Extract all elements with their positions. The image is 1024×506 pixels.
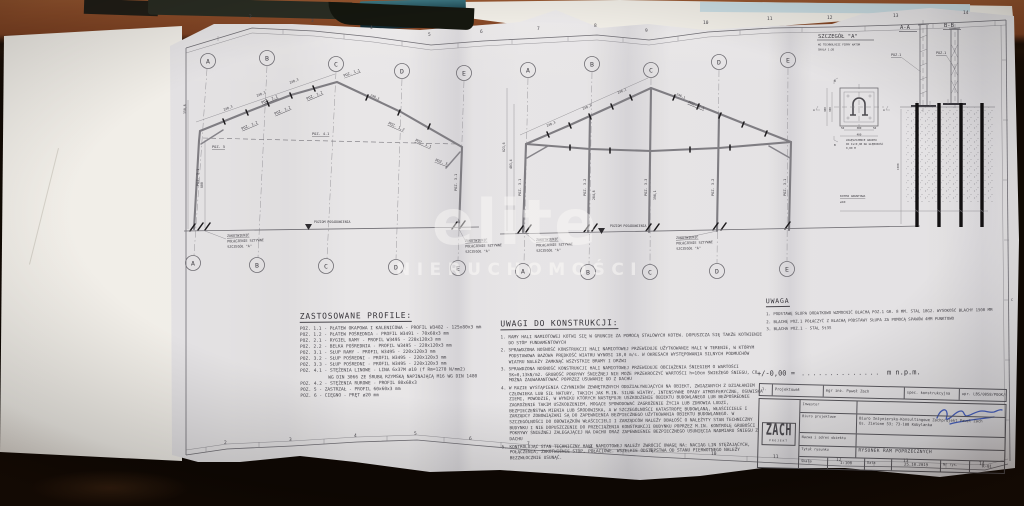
designer-name: mgr inż. Paweł Zach xyxy=(824,386,905,399)
ruler-number: 6 xyxy=(469,437,472,442)
number-value: K-01 xyxy=(970,462,1004,473)
ruler-number: 11 xyxy=(767,17,772,22)
note-item: 1. RAMY HALI NAMIOTOWEJ KOTWI SIĘ W GRUN… xyxy=(500,333,764,347)
note-item: 3. SPRAWDZONA NOŚNOŚĆ KONSTRUKCJI HALI N… xyxy=(501,365,765,385)
ruler-number: 2 xyxy=(249,15,252,20)
investor-label: Inwestor xyxy=(800,400,857,413)
ruler-number: 2 xyxy=(224,441,227,446)
elevation-prefix: +/-0,00 = xyxy=(757,369,795,377)
ruler-number: 4 xyxy=(354,434,357,439)
ruler-number: 6 xyxy=(480,30,483,35)
designer-license: upr. LBS/0058/POOK/07 xyxy=(960,389,1006,401)
elevation-blank: .............. xyxy=(801,369,881,378)
date-value: 25.10.2019 xyxy=(892,460,941,472)
uwaga-notes: UWAGA 1. PODSTAWĘ SŁUPA DODATKOWO WZMOCN… xyxy=(766,284,1007,334)
drawing-title-label: Tytuł rysunku xyxy=(799,446,856,458)
ruler-number: 7 xyxy=(537,27,540,32)
ruler-number: 13 xyxy=(893,14,898,19)
profiles-title: ZASTOSOWANE PROFILE: xyxy=(300,311,412,323)
note-item: 5. KONTROLUJĄC STAN TECHNICZNY HALI NAMI… xyxy=(502,442,766,462)
ruler-number: 3 xyxy=(289,438,292,443)
table-edge-glow xyxy=(30,470,190,506)
ruler-number: 5 xyxy=(428,33,431,38)
number-label: Nr rys. xyxy=(941,461,970,472)
ruler-number: 3 xyxy=(311,19,314,24)
photo-of-technical-drawing: C POZIOM POSADOWIENIA A xyxy=(0,0,1024,506)
scale-label: Skala xyxy=(799,457,828,468)
uwaga-title: UWAGA xyxy=(766,297,790,307)
logo-text: ZACH xyxy=(766,421,793,439)
scale-value: 1:100 xyxy=(828,458,865,470)
notes-title: UWAGI DO KONSTRUKCJI: xyxy=(500,318,618,330)
construction-notes: UWAGI DO KONSTRUKCJI: 1. RAMY HALI NAMIO… xyxy=(500,309,766,464)
ruler-number: 5 xyxy=(414,432,417,437)
elevation-note: +/-0,00 = .............. m n.p.m. xyxy=(757,368,921,377)
ruler-number: 8 xyxy=(594,24,597,29)
note-item: 4. W RAZIE WYSTĄPIENIA CZYNNIKÓW ZEWNĘTR… xyxy=(501,384,766,443)
title-block: 1. Projektował mgr inż. Paweł Zach spec.… xyxy=(757,383,1007,474)
elevation-suffix: m n.p.m. xyxy=(887,368,921,376)
title-block-main: ZACH PROJEKT Inwestor Biuro projektowe B… xyxy=(757,398,1007,474)
object-label: Nazwa i adres obiektu xyxy=(800,433,857,446)
ruler-number: 14 xyxy=(963,11,968,16)
ruler-number: 10 xyxy=(703,21,708,26)
date-label: Data xyxy=(865,459,892,470)
designer-spec: spec. konstrukcyjna xyxy=(905,388,960,400)
office-value: Biuro Inżyniersko-Konsultingowe Zachproj… xyxy=(857,414,1005,437)
company-logo: ZACH PROJEKT xyxy=(758,399,801,468)
office-label: Biuro projektowe xyxy=(800,413,857,434)
ruler-number: 12 xyxy=(827,16,832,21)
row-number: 1. xyxy=(760,384,773,395)
designer-label: Projektował xyxy=(773,384,824,396)
profiles-list: ZASTOSOWANE PROFILE: POZ. 1.1 - PŁATEW O… xyxy=(300,302,499,399)
ruler-number: 9 xyxy=(645,29,648,34)
note-item: 2. SPRAWDZONA NOŚNOŚĆ KONSTRUKCJI HALI N… xyxy=(501,346,765,366)
ruler-number: 4 xyxy=(370,26,373,31)
